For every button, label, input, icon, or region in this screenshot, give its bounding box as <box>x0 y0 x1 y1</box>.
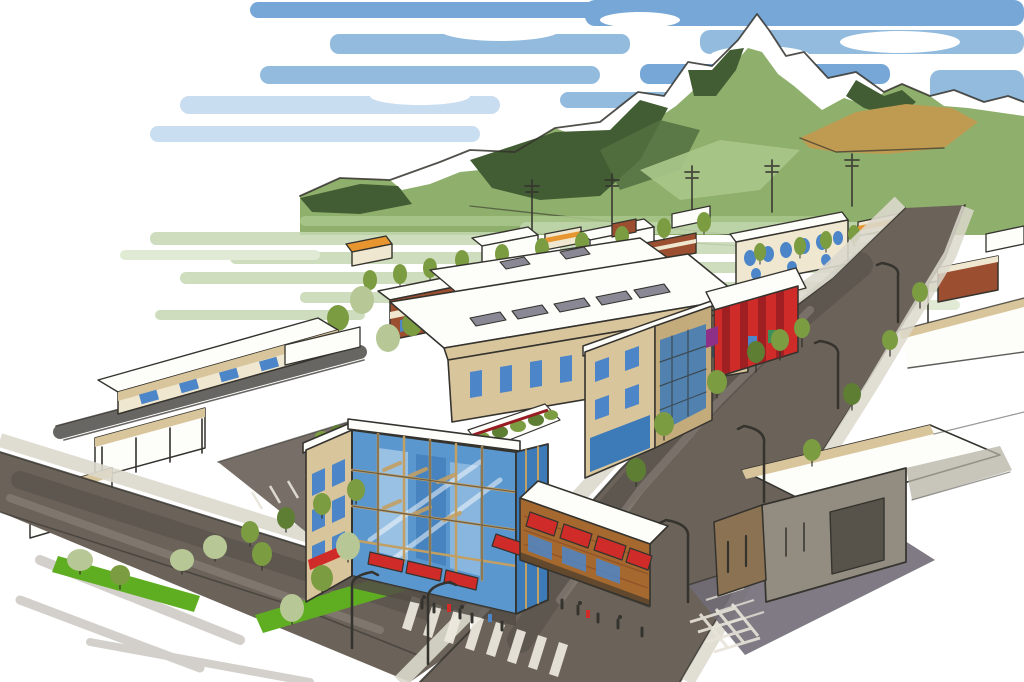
warehouse-tan-wing <box>714 505 766 596</box>
architectural-rendering: Aerial artist's rendering of a proposed … <box>0 0 1024 682</box>
rendering-canvas: Aerial artist's rendering of a proposed … <box>0 0 1024 682</box>
